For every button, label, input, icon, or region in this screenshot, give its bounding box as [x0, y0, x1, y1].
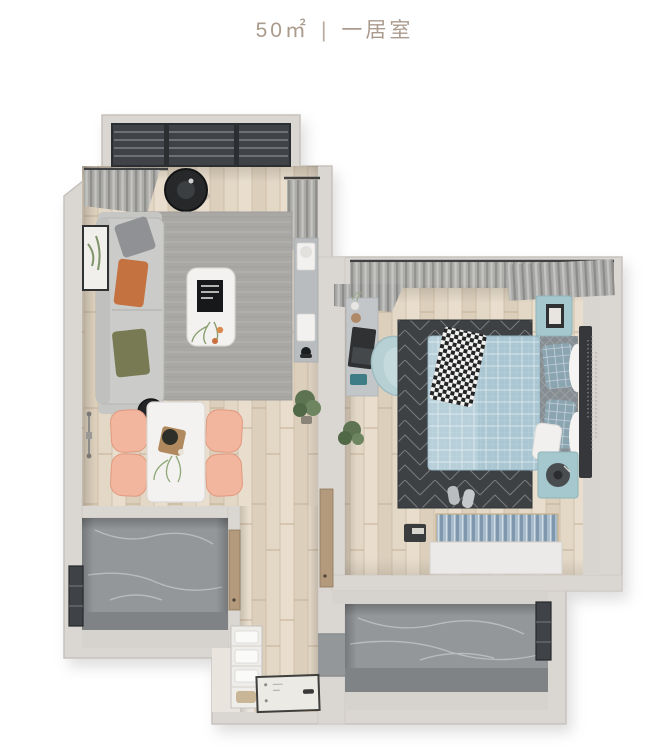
desk-teddy — [351, 313, 361, 323]
kitchen-shade — [82, 518, 94, 612]
chest-front — [430, 542, 562, 574]
bathroom-shade — [345, 604, 357, 668]
desk-vase — [351, 302, 359, 310]
towel — [235, 631, 258, 643]
floor-plan — [0, 0, 669, 751]
nightstand-bottom — [538, 452, 578, 498]
camera-arm — [300, 354, 312, 358]
dining-chair — [205, 453, 243, 497]
coffee-table — [187, 268, 235, 346]
entrance-door — [256, 675, 319, 712]
wall-art — [83, 226, 108, 290]
art-book — [197, 280, 223, 312]
table-fruit — [217, 327, 223, 333]
bathroom-floor-shadow — [345, 668, 548, 692]
record-player-label — [554, 471, 563, 480]
floor-speaker-detail — [412, 528, 424, 534]
balcony-window — [112, 124, 290, 166]
bathroom-bottom-wall-face — [345, 692, 548, 710]
kitchen-door — [229, 530, 240, 610]
dining-chair — [110, 453, 148, 497]
basket — [236, 691, 256, 703]
desk — [346, 292, 378, 396]
kitchen — [69, 518, 240, 648]
kitchen-shade — [216, 518, 228, 612]
kitchen-shade — [82, 518, 228, 530]
picture-frame-mat — [549, 308, 561, 324]
dining-chair — [205, 409, 243, 453]
bathroom-top-wall — [332, 591, 548, 604]
table-fruit — [212, 338, 218, 344]
headboard — [579, 326, 592, 478]
pillow-orange — [113, 258, 148, 307]
kitchen-door-knob — [232, 598, 235, 601]
towel — [235, 670, 258, 682]
bathroom-window — [536, 602, 551, 660]
curtain-left — [84, 170, 160, 214]
bathroom — [318, 602, 551, 710]
media-console — [294, 238, 318, 362]
pillow-olive — [112, 328, 151, 377]
balcony-window-mullion — [164, 124, 169, 166]
bedroom-door-knob — [323, 574, 326, 577]
door-handle — [303, 689, 314, 694]
speaker — [297, 314, 315, 341]
dining-chair — [110, 409, 148, 453]
kitchen-bottom-wall-face — [82, 630, 228, 648]
laptop-keyboard — [351, 347, 373, 365]
bedroom-door — [320, 489, 333, 587]
bathroom-doorway — [318, 634, 345, 676]
balcony-window-mullion — [234, 124, 239, 166]
bedroom-curtain-bunch-right — [507, 259, 615, 300]
bathroom-shade — [345, 604, 548, 616]
bedroom-bathroom-wall — [332, 575, 622, 591]
towel — [235, 650, 258, 663]
desk-book — [350, 374, 367, 385]
speaker-cone — [300, 246, 312, 258]
kitchen-floor-shadow — [82, 612, 228, 630]
floorplan-page: 50㎡|一居室 — [0, 0, 669, 751]
kitchen-window — [69, 566, 83, 626]
nightstand-top — [536, 296, 572, 336]
records-strip — [436, 514, 558, 542]
